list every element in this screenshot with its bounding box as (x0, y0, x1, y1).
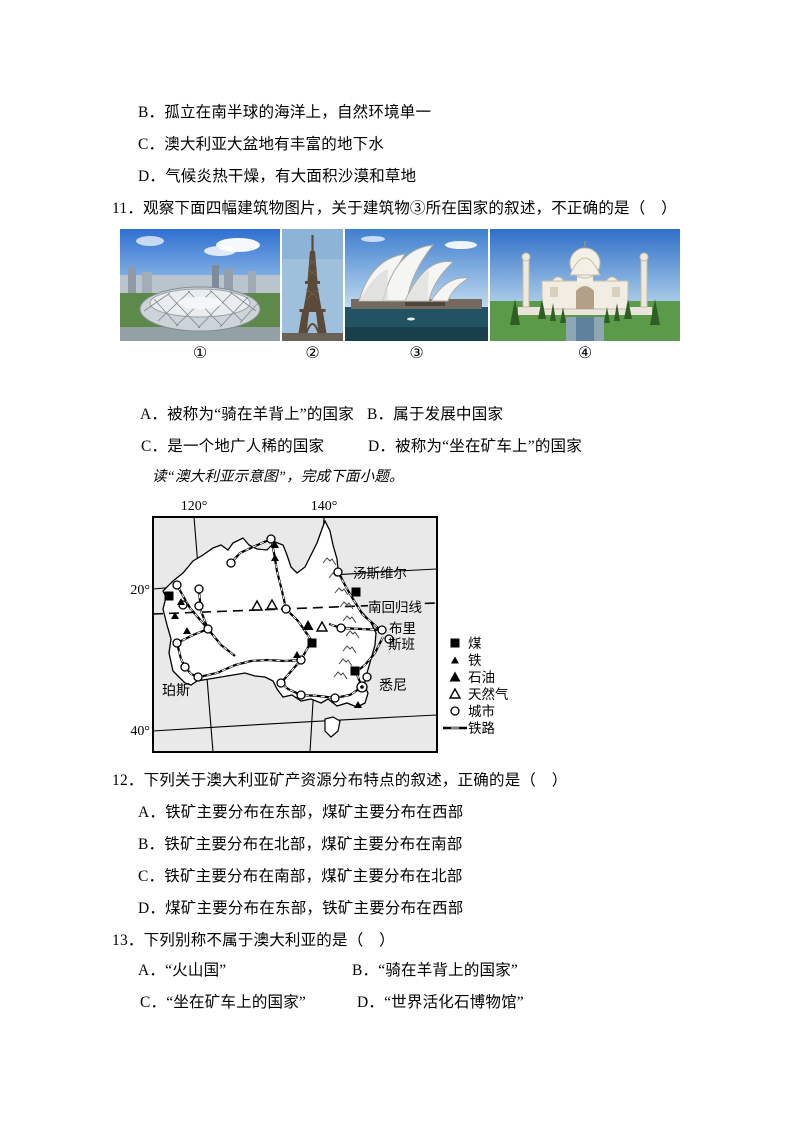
photo-number-2: ② (282, 343, 343, 363)
photo-number-1: ① (120, 343, 280, 363)
tropic-label: 南回归线 (368, 599, 422, 615)
latitude-label-20: 20° (130, 583, 150, 598)
q12-option-c: C．铁矿主要分布在南部，煤矿主要分布在北部 (138, 864, 463, 886)
taj-mahal-illustration (490, 229, 680, 341)
q13-option-c: C．“坐在矿车上的国家” (140, 990, 306, 1012)
q13-option-b: B．“骑在羊背上的国家” (352, 958, 518, 980)
q12-option-a: A．铁矿主要分布在东部，煤矿主要分布在西部 (138, 800, 463, 822)
building-photo-strip (120, 229, 680, 346)
photo-eiffel-tower (282, 229, 343, 346)
photo-taj-mahal (490, 229, 680, 346)
q12-option-b: B．铁矿主要分布在北部，煤矿主要分布在南部 (138, 832, 463, 854)
legend-label-coal: 煤 (468, 636, 482, 651)
question-11-stem: 11．观察下面四幅建筑物图片，关于建筑物③所在国家的叙述，不正确的是（ ） (112, 196, 677, 218)
city-label-sydney: 悉尼 (379, 678, 407, 694)
gas-triangle-icon (450, 689, 460, 698)
building-photo-numbers: ① ② ③ ④ (120, 343, 680, 363)
legend-item-railway: 铁路 (443, 721, 495, 736)
legend-item-iron: 铁 (451, 653, 482, 668)
legend-label-oil: 石油 (468, 670, 495, 685)
longitude-label-140: 140° (311, 499, 338, 514)
sydney-marker (357, 682, 367, 692)
q11-option-d: D．被称为“坐在矿车上”的国家 (368, 434, 582, 456)
q13-option-d: D．“世界活化石博物馆” (357, 990, 524, 1012)
exam-page: B．孤立在南半球的海洋上，自然环境单一 C．澳大利亚大盆地有丰富的地下水 D．气… (0, 0, 794, 1123)
australia-map: 120° 140° 20° 40° (125, 493, 575, 768)
latitude-label-40: 40° (130, 724, 150, 739)
oil-triangle-icon (450, 672, 461, 682)
q11-option-b: B．属于发展中国家 (367, 402, 503, 424)
legend-item-coal: 煤 (451, 636, 483, 651)
legend-item-oil: 石油 (450, 670, 496, 685)
prev-option-b: B．孤立在南半球的海洋上，自然环境单一 (138, 100, 431, 122)
prev-option-d: D．气候炎热干燥，有大面积沙漠和草地 (138, 164, 416, 186)
legend-item-gas: 天然气 (450, 686, 509, 702)
reading-note: 读“澳大利亚示意图”，完成下面小题。 (152, 465, 404, 486)
q12-option-d: D．煤矿主要分布在东部，铁矿主要分布在西部 (138, 896, 463, 918)
legend-label-city: 城市 (468, 703, 495, 719)
longitude-label-120: 120° (181, 499, 208, 514)
q13-option-a: A．“火山国” (138, 958, 226, 980)
photo-number-4: ④ (490, 343, 680, 363)
eiffel-tower-illustration (282, 229, 343, 341)
city-label-brisbane-2: 斯班 (388, 637, 415, 652)
photo-sydney-opera-house (345, 229, 488, 346)
prev-option-c: C．澳大利亚大盆地有丰富的地下水 (138, 132, 384, 154)
question-13-stem: 13．下列别称不属于澳大利亚的是（ ） (112, 928, 395, 950)
iron-triangle-icon (451, 657, 459, 664)
legend-item-city: 城市 (451, 703, 495, 719)
legend-label-iron: 铁 (468, 653, 482, 668)
map-legend: 煤 铁 石油 天然气 城市 铁路 (443, 636, 509, 736)
city-label-brisbane-1: 布里 (389, 621, 416, 636)
photo-beijing-national-stadium (120, 229, 280, 346)
photo-number-3: ③ (345, 343, 488, 363)
city-label-perth: 珀斯 (162, 683, 190, 699)
legend-label-railway: 铁路 (468, 721, 495, 736)
opera-house-illustration (345, 229, 488, 341)
city-label-townsville: 汤斯维尔 (353, 566, 407, 581)
legend-label-gas: 天然气 (468, 686, 509, 702)
q11-option-a: A．被称为“骑在羊背上”的国家 (140, 402, 354, 424)
birds-nest-illustration (120, 229, 280, 341)
q11-option-c: C．是一个地广人稀的国家 (141, 434, 324, 456)
question-12-stem: 12．下列关于澳大利亚矿产资源分布特点的叙述，正确的是（ ） (112, 768, 568, 790)
city-circle-icon (451, 707, 459, 715)
coal-square-icon (451, 639, 460, 648)
